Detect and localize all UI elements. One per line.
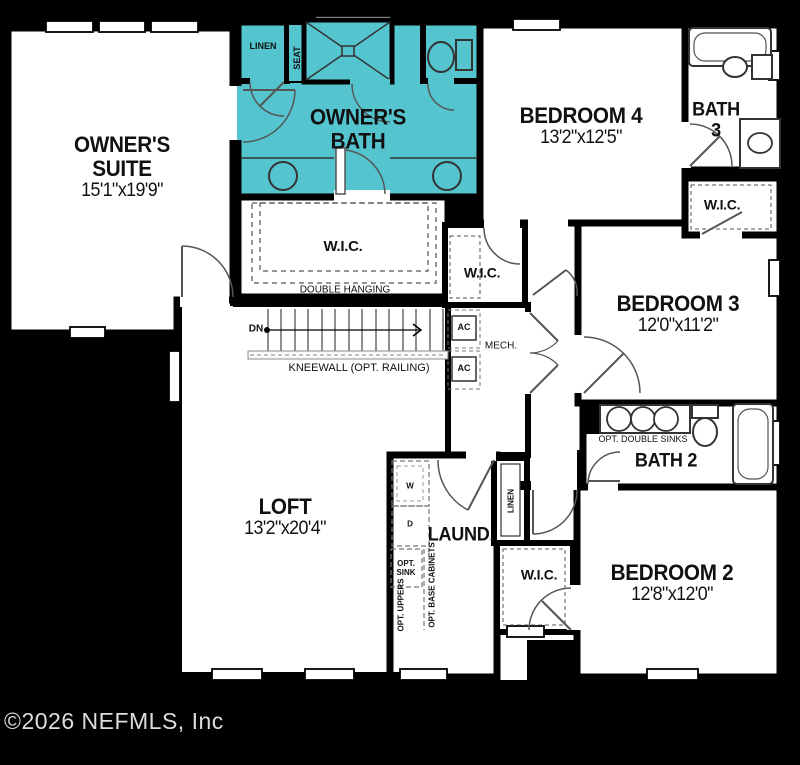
sink [607,407,631,431]
double-hanging-label: DOUBLE HANGING [300,286,391,297]
kneewall-label: KNEEWALL (OPT. RAILING) [289,363,430,375]
wic-bedroom2-label: W.I.C. [521,567,557,582]
bedroom4-dims: 13'2"x12'5" [520,128,643,149]
ac2-label: AC [458,364,471,374]
sink [269,162,297,190]
wic-bedroom3-label: W.I.C. [704,197,740,212]
window [70,327,105,338]
washer-label: W [406,481,414,490]
window [169,351,180,402]
window [507,626,544,637]
dryer-label: D [407,519,413,528]
bedroom4-label: BEDROOM 4 13'2"x12'5" [520,104,643,148]
seat-label: SEAT [293,46,303,69]
opt-double-sinks-label: OPT. DOUBLE SINKS [598,435,687,445]
floor-plan: OWNER'S SUITE 15'1"x19'9" OWNER'S BATH B… [0,0,800,765]
copyright-text: ©2026 NEFMLS, Inc [4,708,224,735]
sink [654,407,678,431]
stairs-dn-label: DN [249,325,263,336]
sink [631,407,655,431]
owners-suite-label: OWNER'S SUITE 15'1"x19'9" [74,133,170,201]
bath3-label: BATH 3 [692,100,740,141]
window [513,19,560,30]
sink [748,133,772,153]
ac1-label: AC [458,323,471,333]
owners-bath-label: OWNER'S BATH [310,105,406,153]
owners-suite-dims: 15'1"x19'9" [74,180,170,201]
loft-dims: 13'2"x20'4" [244,519,326,540]
room-wic-bedroom2 [497,543,573,632]
bedroom3-dims: 12'0"x11'2" [617,316,740,337]
loft-bottom-wall [174,672,406,680]
mech-label: MECH. [485,342,517,353]
toilet-tank [692,405,718,418]
corner-fill [527,640,577,680]
shower-drain [342,46,354,56]
window [400,669,447,680]
toilet [723,57,747,77]
window [99,21,145,32]
bath-door-leaf [336,148,345,194]
loft-label: LOFT 13'2"x20'4" [244,495,326,539]
bedroom2-dims: 12'8"x12'0" [611,585,734,606]
opt-uppers-label: OPT. UPPERS [396,579,405,632]
toilet [428,42,454,72]
laundry-label: LAUND. [428,526,494,547]
wic-hall-label: W.I.C. [464,265,500,280]
toilet [693,418,717,446]
opt-sink-label: OPT. SINK [396,559,415,577]
linen-hall-label: LINEN [506,489,515,513]
toilet-tank [456,40,472,70]
window [647,669,698,680]
linen-bath-label: LINEN [250,42,277,52]
window [769,260,780,296]
window [46,21,93,32]
bedroom3-label: BEDROOM 3 12'0"x11'2" [617,292,740,336]
wic-owners-label: W.I.C. [323,239,362,255]
window [305,669,354,680]
toilet-tank [752,55,772,79]
opt-base-cabinets-label: OPT. BASE CABINETS [427,542,436,627]
bath2-label: BATH 2 [635,452,697,473]
sink [433,162,461,190]
window [212,669,262,680]
bedroom2-label: BEDROOM 2 12'8"x12'0" [611,561,734,605]
window [151,21,198,32]
